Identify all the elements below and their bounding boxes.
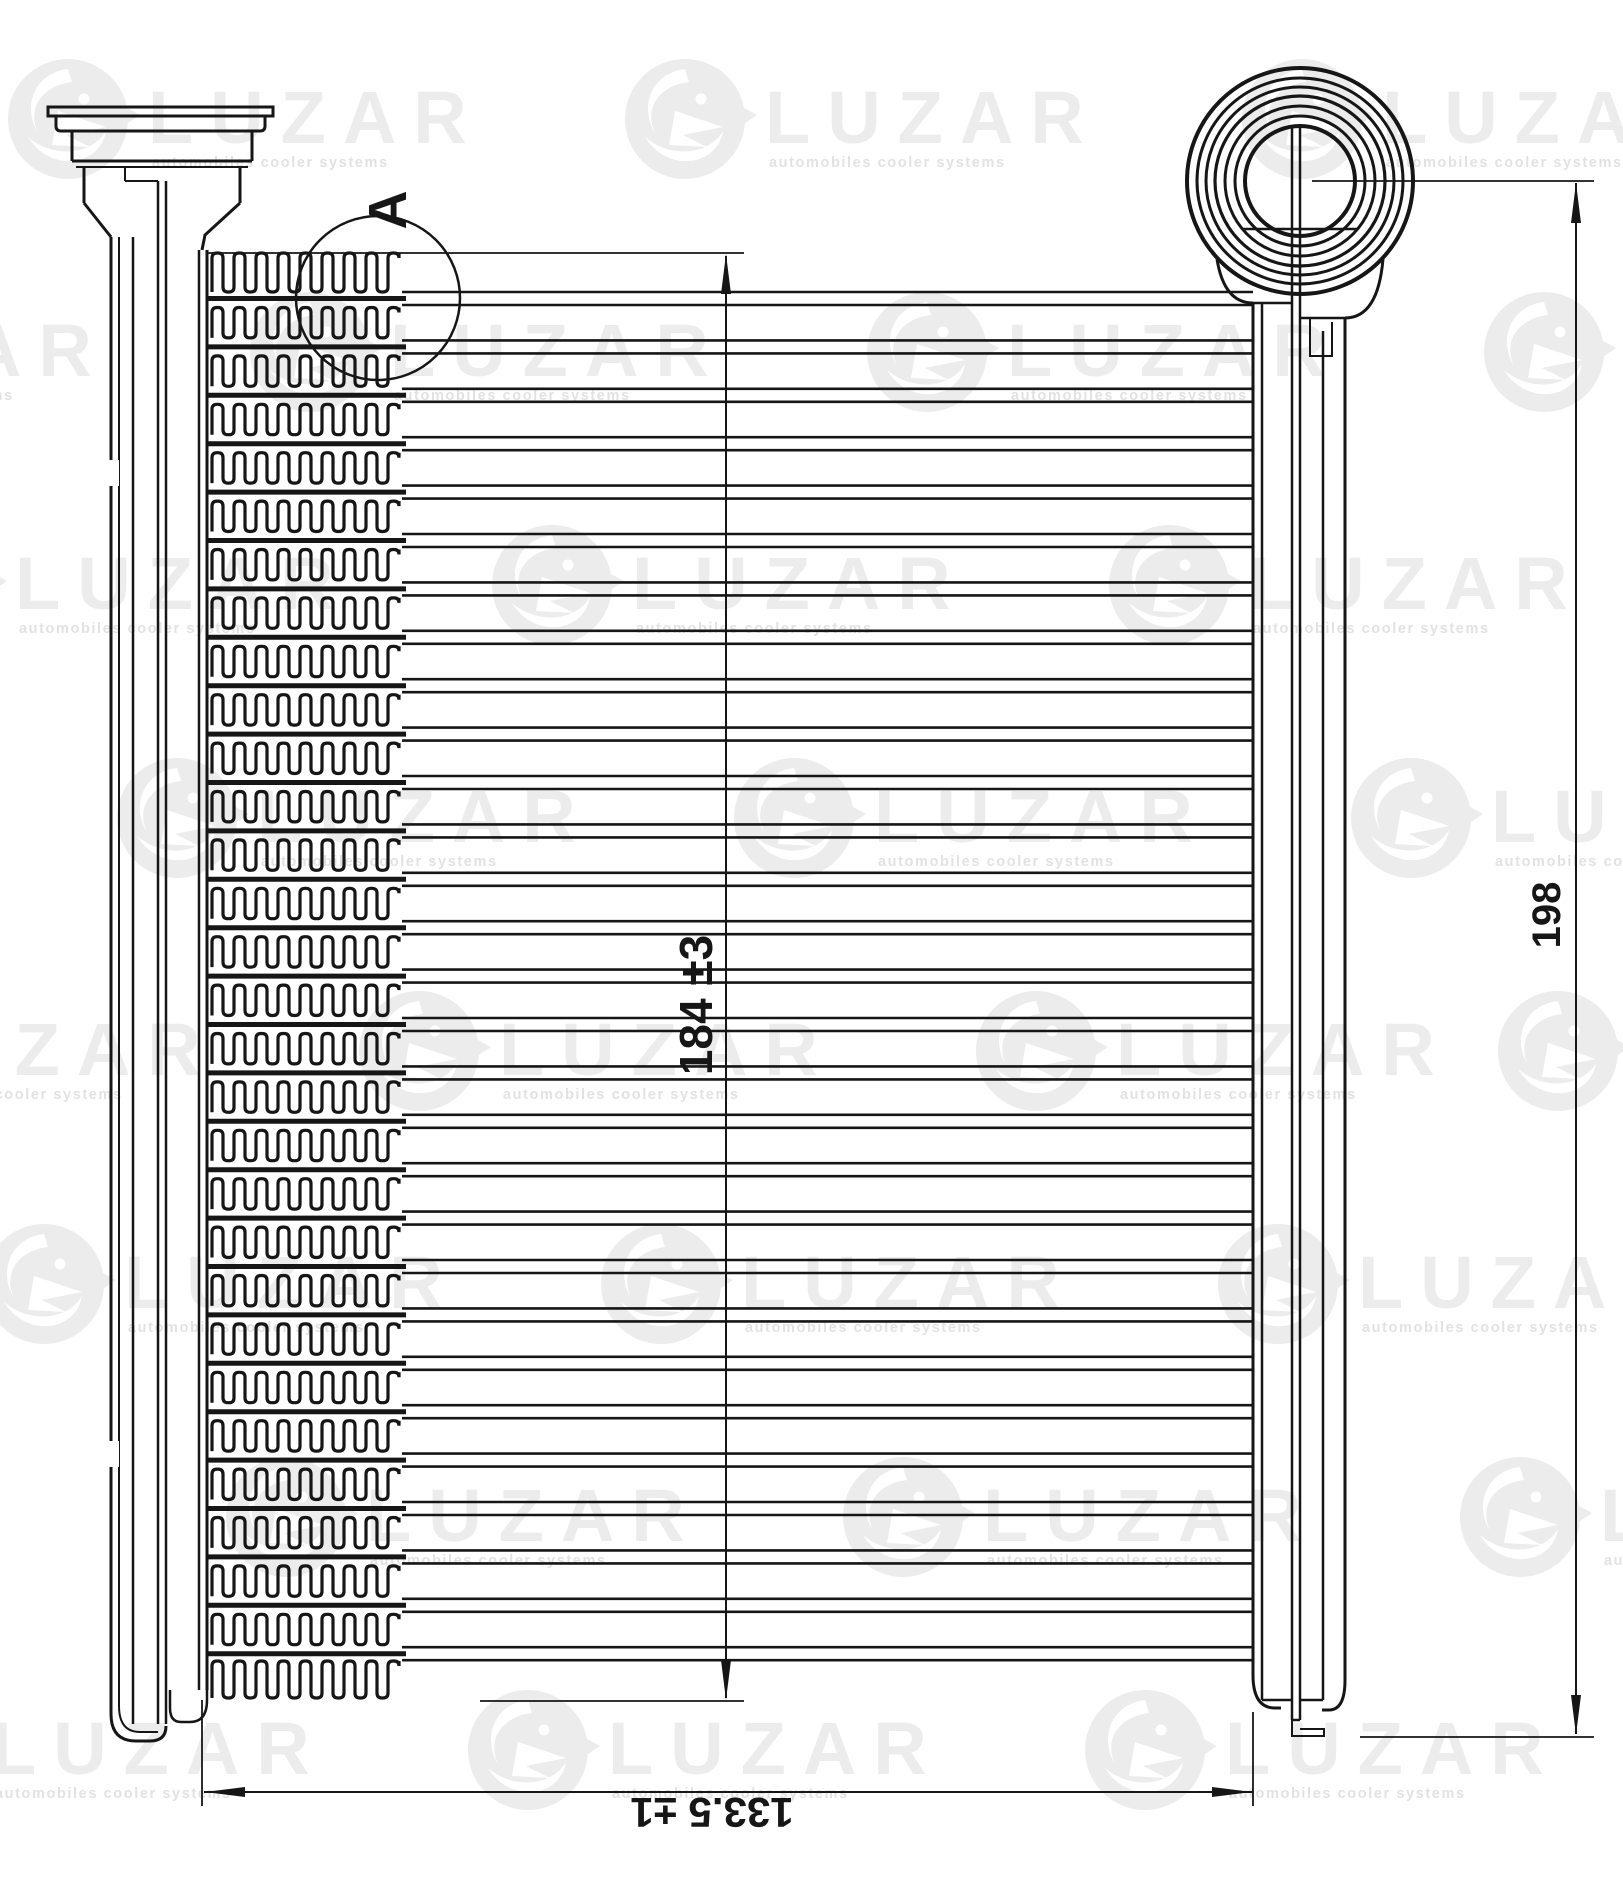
fin-corrugation: [212, 550, 399, 580]
fin-corrugation: [212, 1661, 399, 1698]
fin-corrugation: [212, 308, 399, 338]
fitting-inner-step: [125, 167, 158, 181]
fitting-shoulder-right: [202, 203, 240, 250]
fin-corrugation: [212, 1130, 399, 1160]
dim-arrow-right: [1212, 1787, 1252, 1797]
tank-clip: [1310, 318, 1332, 356]
left-pipe-column: [103, 181, 166, 1741]
core-matrix: [208, 253, 1253, 1698]
fin-corrugation: [212, 1566, 399, 1596]
drawing-sheet: LUZARautomobiles cooler systemsLUZARauto…: [0, 0, 1623, 1897]
fin-corrugation: [212, 453, 399, 483]
dim-arrow-up: [1571, 183, 1581, 223]
dim-overall-height: 198: [1312, 181, 1594, 1737]
tank-left-edge: [1253, 303, 1281, 1708]
pipe-bottom-cap-inner: [119, 1706, 158, 1732]
right-tank: [1187, 68, 1413, 1736]
pipe-clip-lower: [103, 1441, 119, 1467]
tank-right-edge: [1322, 318, 1345, 1710]
dim-overall-height-label: 198: [1525, 882, 1569, 949]
fitting-body: [72, 131, 252, 161]
pipe-clip-upper: [103, 460, 119, 486]
fin-corrugation: [212, 985, 399, 1015]
fin-corrugation: [212, 1082, 399, 1112]
fin-corrugation: [212, 1372, 399, 1402]
fin-corrugation: [212, 356, 399, 386]
fin-corrugation: [212, 937, 399, 967]
fin-corrugation: [212, 840, 399, 870]
outlet-neck-right: [1345, 259, 1383, 318]
fitting-flange-lip: [56, 116, 265, 131]
dim-arrow-left: [205, 1787, 245, 1797]
fin-corrugation: [212, 695, 399, 725]
fin-corrugation: [212, 1034, 399, 1064]
tank-bottom-hook: [1292, 1720, 1324, 1736]
fin-corrugation: [212, 1324, 399, 1354]
fin-corrugation: [212, 792, 399, 822]
dim-arrow-up: [721, 254, 731, 294]
fin-corrugation: [212, 1614, 399, 1644]
dim-core-height-label: 184 ±3: [670, 935, 722, 1075]
dim-arrow-down: [1571, 1695, 1581, 1735]
fin-corrugation: [212, 1276, 399, 1306]
fitting-lower-body: [84, 167, 240, 203]
left-side-plate: [170, 250, 207, 1722]
fin-corrugation: [212, 501, 399, 531]
fin-corrugation: [212, 1179, 399, 1209]
fin-corrugation: [212, 888, 399, 918]
fin-corrugation: [212, 404, 399, 434]
dim-core-width-label: 133.5 ±1: [630, 1789, 793, 1836]
dim-core-width: 133.5 ±1: [202, 1700, 1253, 1836]
heater-core-technical-drawing: A 184 ±3 198: [0, 0, 1623, 1897]
fin-corrugation: [212, 646, 399, 676]
inlet-pipe-fitting: [48, 107, 273, 250]
dimensions: 184 ±3 198 133.5 ±1: [202, 181, 1594, 1836]
fin-corrugation: [212, 598, 399, 628]
fin-corrugation: [212, 1518, 399, 1548]
fin-corrugation: [212, 1421, 399, 1451]
fin-corrugation: [212, 743, 399, 773]
tank-center-tube: [1292, 126, 1300, 1720]
fin-corrugation: [212, 1469, 399, 1499]
fin-corrugation: [212, 1227, 399, 1257]
detail-label: A: [358, 191, 418, 230]
dim-arrow-down: [721, 1660, 731, 1700]
fitting-shoulder-left: [84, 203, 111, 237]
